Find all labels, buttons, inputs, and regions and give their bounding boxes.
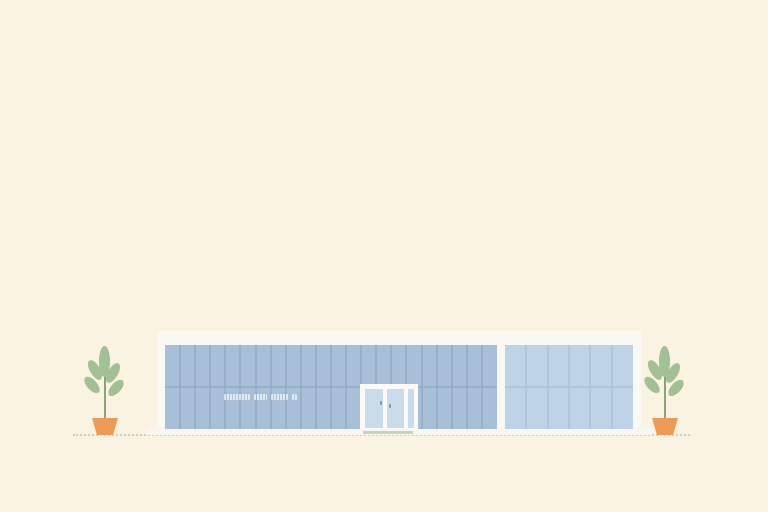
door-right-pane (387, 389, 404, 428)
terracotta-pot (92, 418, 118, 435)
door-left-pane (365, 389, 383, 428)
sign-text-segment (292, 394, 297, 400)
doormat (363, 431, 413, 434)
horizontal-mullion-left (165, 386, 497, 388)
sign-text-segment (254, 394, 267, 400)
sign-text-segment (224, 394, 250, 400)
illustration-scene (0, 0, 768, 512)
potted-plant-right (645, 345, 685, 435)
potted-plant-left (85, 345, 125, 435)
storefront-sign (224, 394, 297, 400)
horizontal-mullion-right (505, 386, 633, 388)
entrance-door-frame (360, 384, 418, 429)
door-sidelight-pane (408, 389, 414, 428)
sign-text-segment (271, 394, 288, 400)
glass-section-right (505, 345, 633, 429)
door-handle-left (380, 401, 382, 405)
terracotta-pot (652, 418, 678, 435)
door-handle-right (389, 404, 391, 408)
glass-section-left (165, 345, 497, 429)
